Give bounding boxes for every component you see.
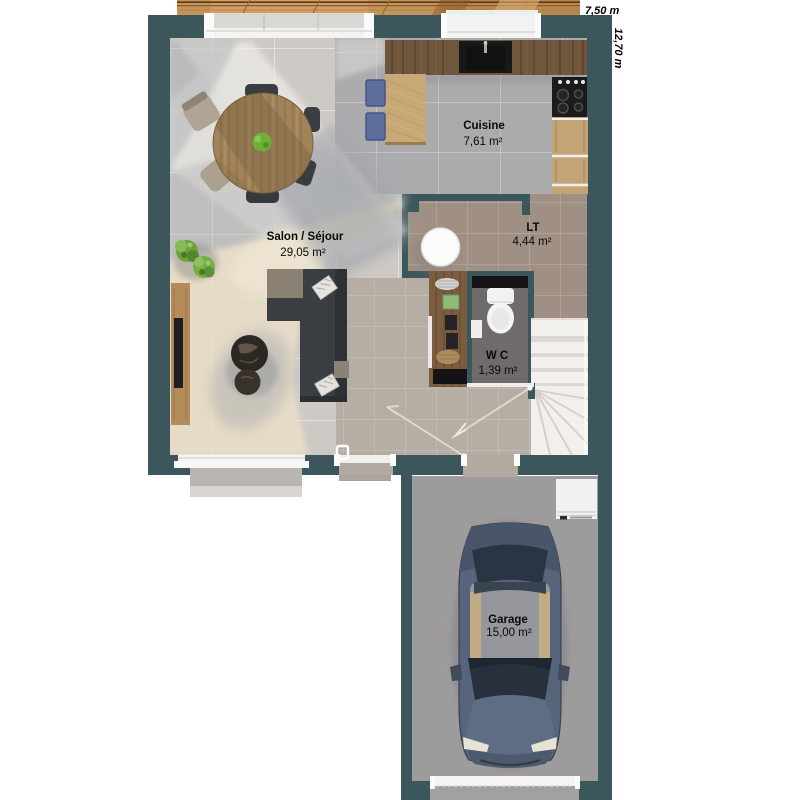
svg-text:7,50 m: 7,50 m <box>585 5 619 17</box>
svg-text:LT: LT <box>526 222 539 234</box>
svg-text:15,00 m²: 15,00 m² <box>486 627 532 639</box>
svg-text:7,61 m²: 7,61 m² <box>464 136 503 148</box>
svg-text:12,70 m: 12,70 m <box>612 28 624 69</box>
svg-text:29,05 m²: 29,05 m² <box>280 247 326 259</box>
svg-text:Salon / Séjour: Salon / Séjour <box>267 231 344 243</box>
svg-text:Cuisine: Cuisine <box>463 120 505 132</box>
svg-text:4,44 m²: 4,44 m² <box>513 236 552 248</box>
svg-text:Garage: Garage <box>488 614 528 626</box>
svg-text:W C: W C <box>486 350 508 362</box>
svg-text:1,39 m²: 1,39 m² <box>479 365 518 377</box>
